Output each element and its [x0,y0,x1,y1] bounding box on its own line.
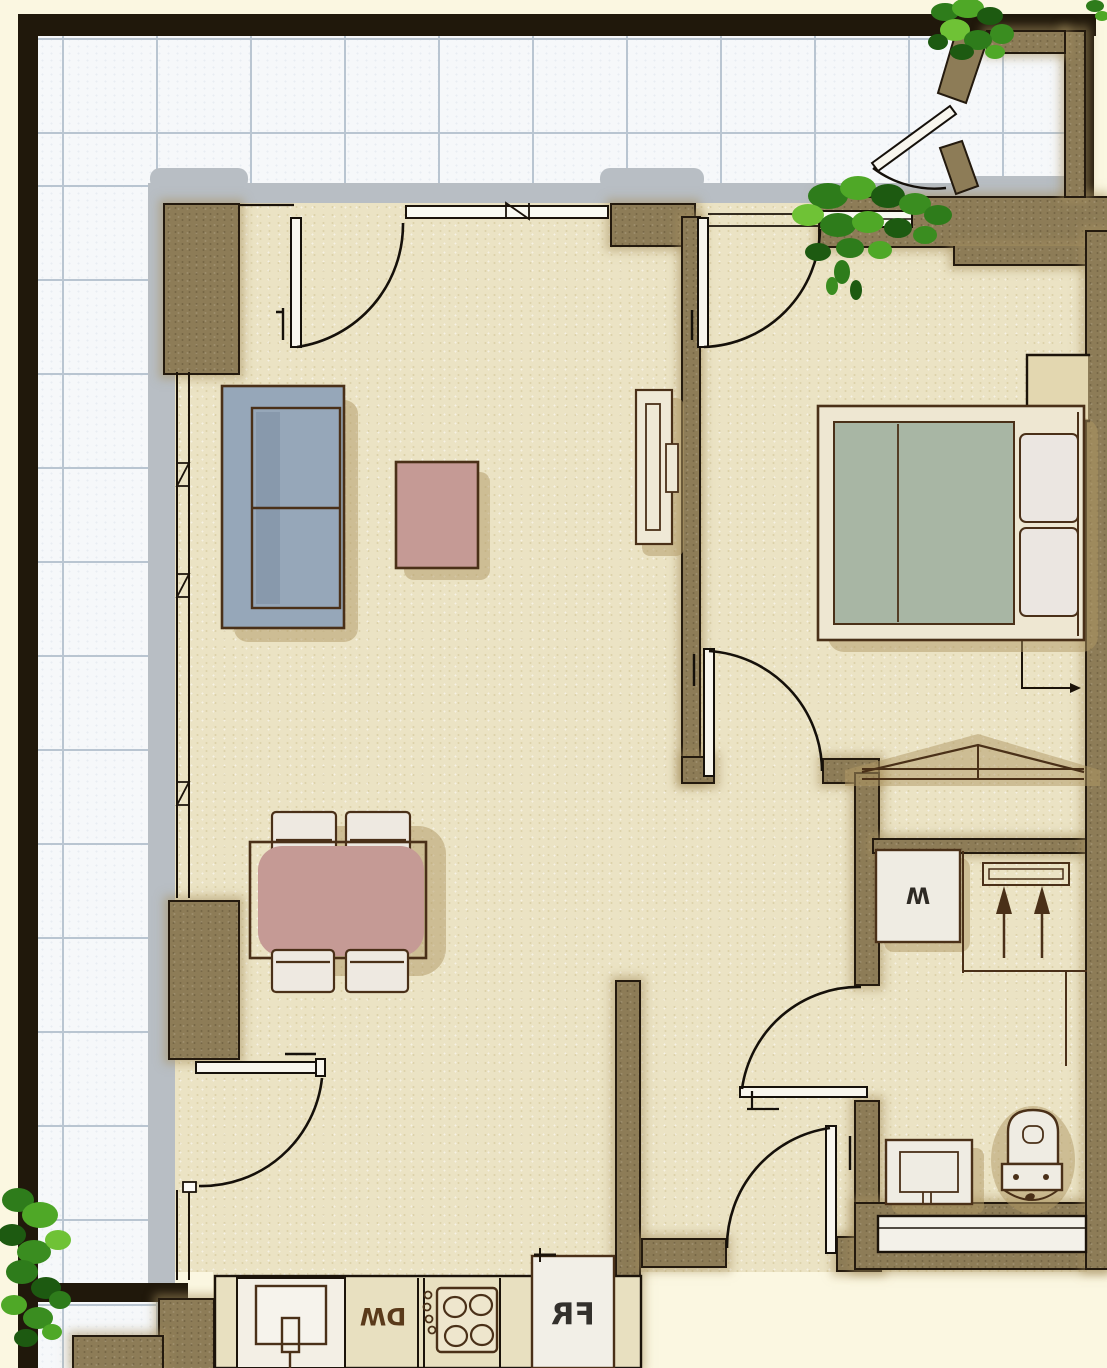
door-bedroom-hall [694,649,822,776]
washbasin [886,1140,984,1214]
pillow [1020,528,1078,616]
floor-plan: DW FR W [0,0,1107,1368]
wardrobe-rail [845,734,1100,786]
bathroom-window [878,1216,1086,1252]
dishwasher-label: DW [360,1302,406,1330]
dining-set [250,812,446,992]
window-break-icon [177,574,189,597]
fridge-label: FR [551,1298,595,1333]
arrow-up-icon [996,886,1012,914]
window-break-icon [177,463,189,486]
dining-chair [346,950,408,992]
door-bathroom [740,987,867,1109]
toilet [991,1106,1075,1214]
door-porch-bedroom [692,218,820,347]
dining-table [258,846,424,956]
mattress [834,422,1014,624]
arrow-up-icon [1034,886,1050,914]
washer-label: W [906,882,930,907]
shelf [983,863,1069,885]
window-symbols [177,203,1086,1280]
dining-chair [272,950,334,992]
door-terrace-living-left [196,1054,325,1186]
shower-closet [963,851,1087,1066]
plant-top-right [928,0,1107,60]
bed [818,406,1098,652]
tv-unit [636,390,684,556]
door-terrace-living-top [276,218,403,347]
plant-bottom-left [0,1188,71,1347]
sofa [222,386,358,642]
window-break-icon [177,782,189,805]
coffee-table [396,462,490,580]
plan-linework [0,0,1107,1368]
pillow [1020,434,1078,522]
plant-window-box [792,176,952,300]
door-entry-hall [727,1126,850,1253]
